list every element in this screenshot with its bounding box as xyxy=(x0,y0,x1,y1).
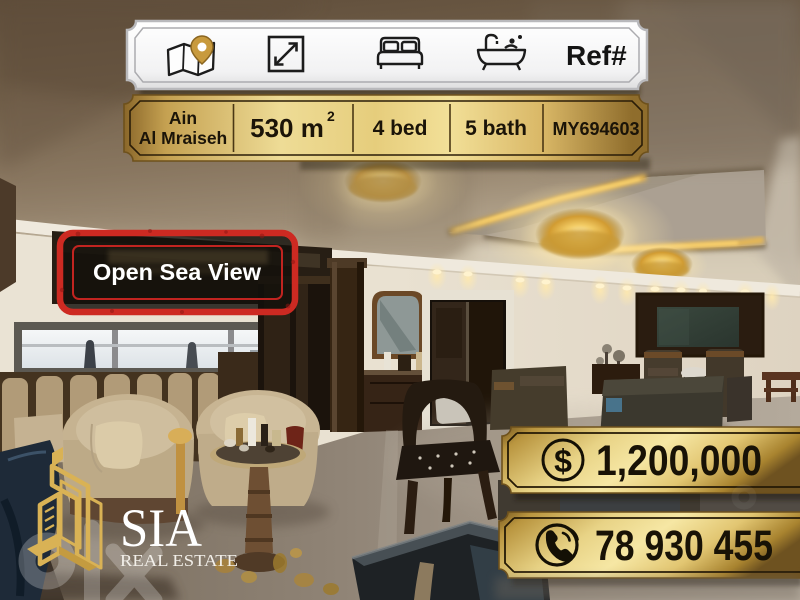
svg-text:530 m: 530 m xyxy=(250,113,324,143)
svg-text:5 bath: 5 bath xyxy=(465,117,527,140)
svg-text:MY694603: MY694603 xyxy=(552,119,639,139)
svg-text:Al Mraiseh: Al Mraiseh xyxy=(139,128,228,148)
svg-text:Ain: Ain xyxy=(169,108,197,128)
svg-text:2: 2 xyxy=(327,108,335,124)
svg-text:4 bed: 4 bed xyxy=(373,117,428,140)
svg-text:Ref#: Ref# xyxy=(566,40,627,71)
svg-text:SIA: SIA xyxy=(120,498,202,558)
svg-text:Open Sea View: Open Sea View xyxy=(93,259,262,285)
svg-text:78 930 455: 78 930 455 xyxy=(595,522,773,570)
svg-text:REAL ESTATE: REAL ESTATE xyxy=(120,551,238,570)
svg-text:$: $ xyxy=(554,443,572,479)
svg-text:1,200,000: 1,200,000 xyxy=(596,437,762,485)
